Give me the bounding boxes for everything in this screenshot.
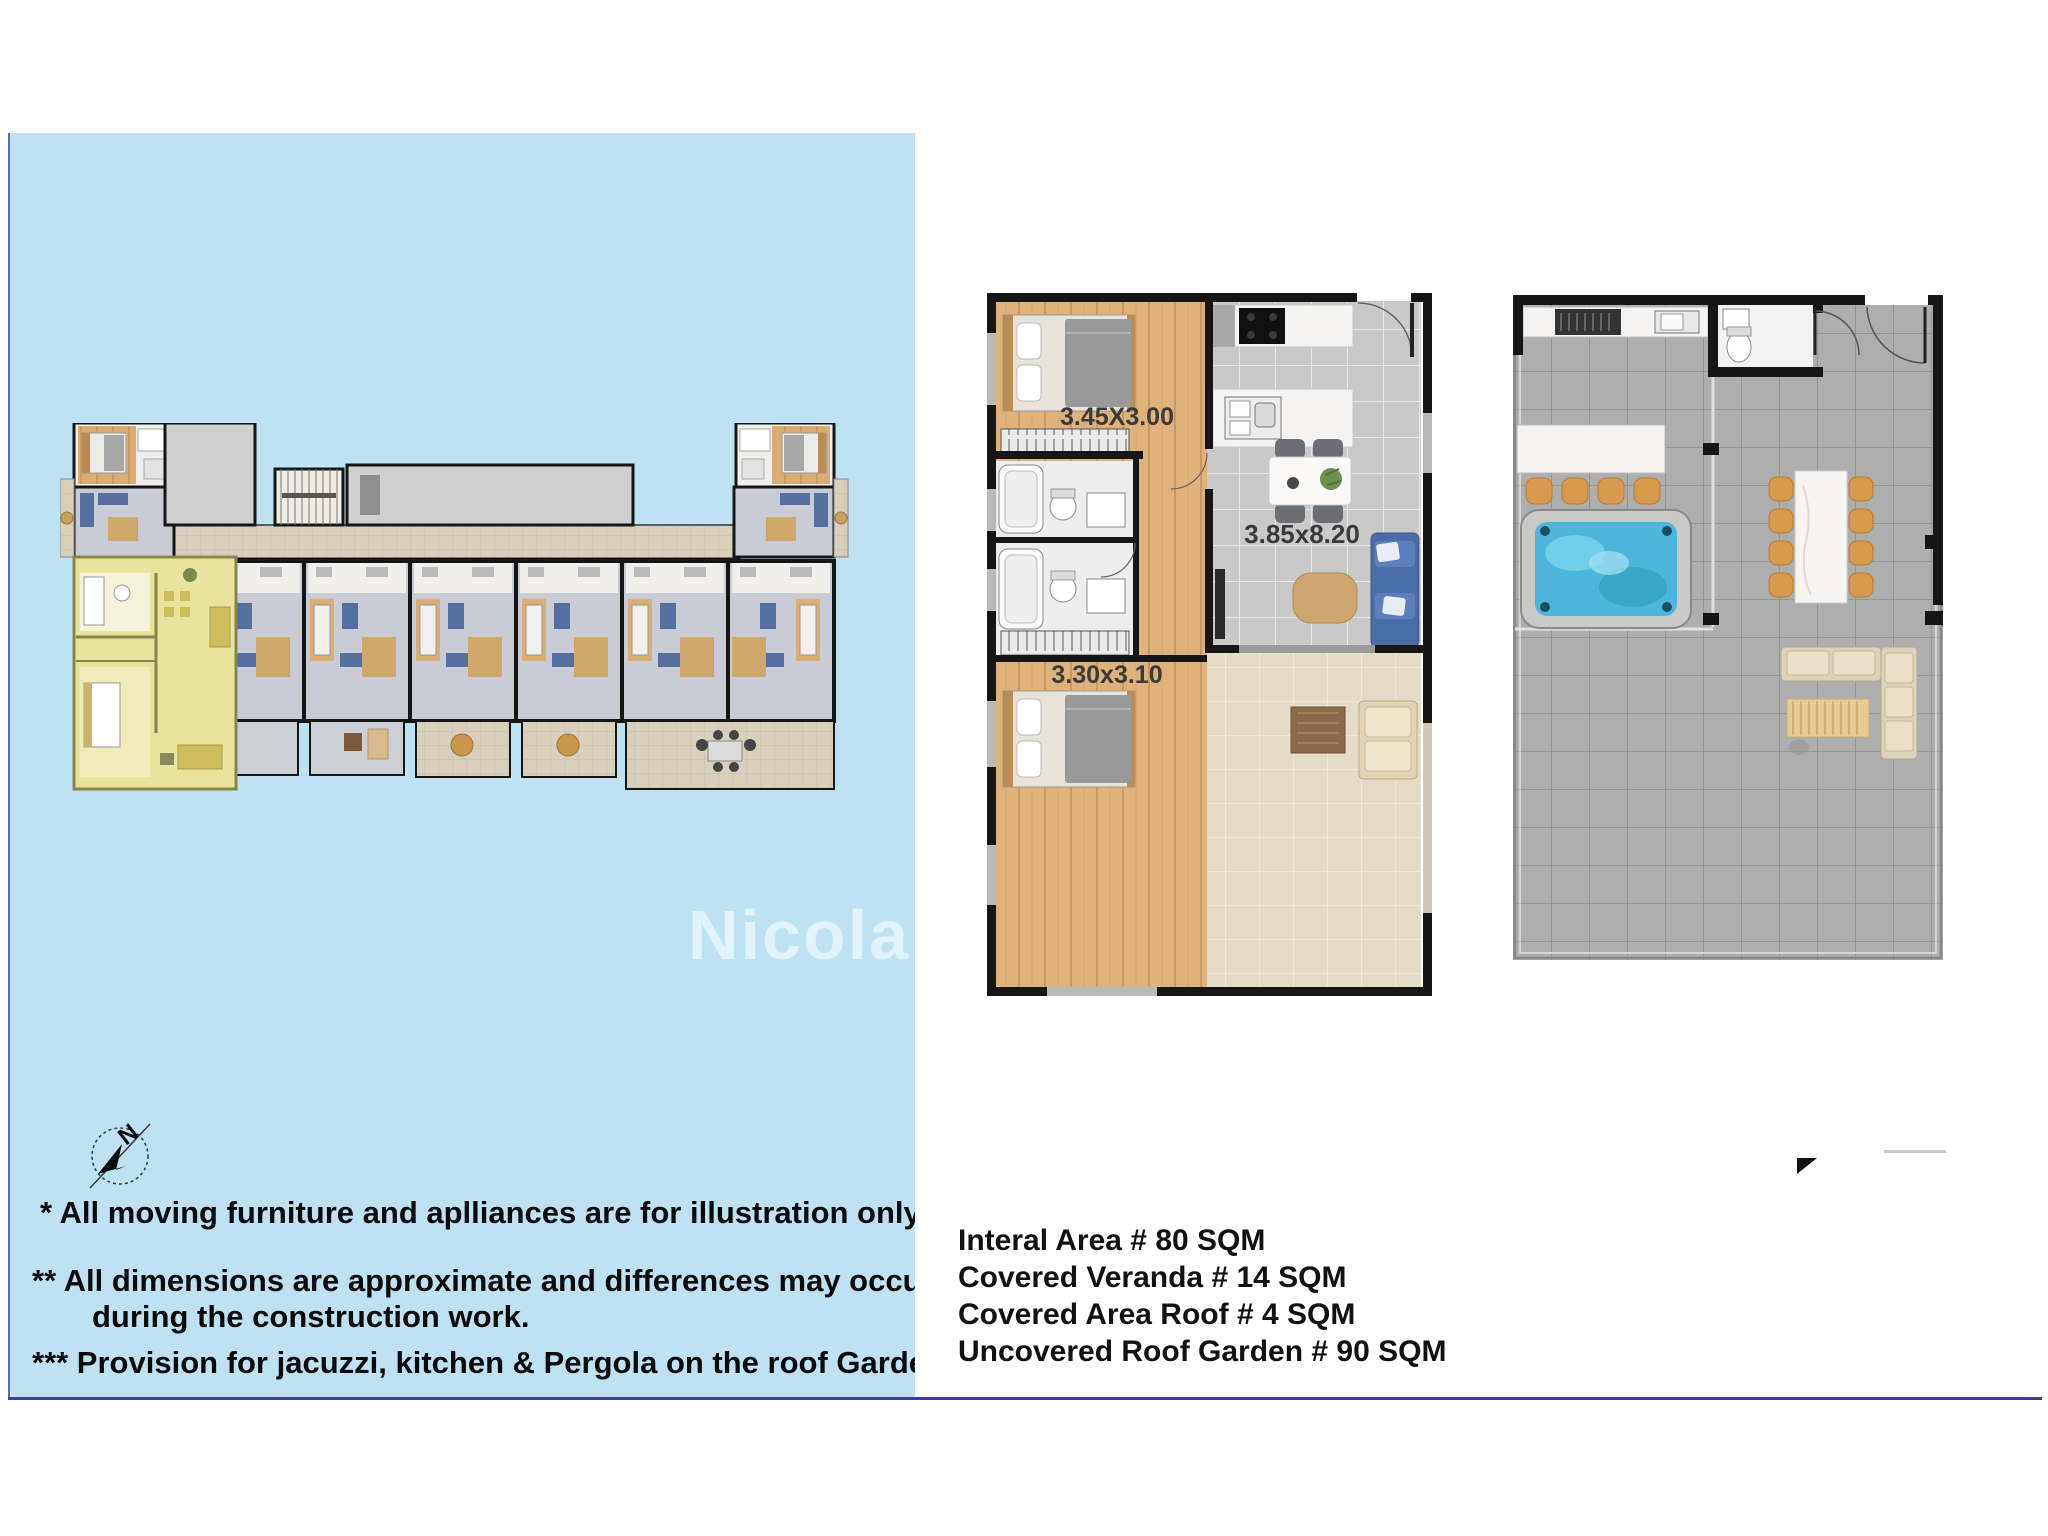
highlighted-unit: [74, 557, 236, 789]
bedroom1-dim-label: 3.45X3.00: [1060, 403, 1174, 431]
disclaimer-2-cont: during the construction work.: [92, 1299, 529, 1335]
wardrobe-1: [1001, 429, 1129, 453]
area-covered-veranda: Covered Veranda # 14 SQM: [958, 1261, 1347, 1295]
jacuzzi: [1521, 510, 1691, 628]
disclaimer-2: ** All dimensions are approximate and di…: [32, 1263, 915, 1299]
studio-units-row: [198, 561, 834, 789]
roof-block-right: [347, 465, 633, 525]
living-sofa: [1371, 533, 1419, 647]
stairwell: [275, 469, 343, 525]
compass-north-label: N: [113, 1119, 143, 1151]
floorplan-sheet: ·· ···· ·· ·····: [0, 0, 2048, 1536]
roof-block-left: [165, 423, 255, 525]
key-floor-plan: [60, 423, 852, 795]
tv-unit: [1215, 569, 1225, 639]
kitchen-counter: [1213, 305, 1353, 347]
apartment-floor-plan: 3.45X3.00 3.85x8.20 3.30x3.10: [987, 293, 1432, 996]
corridor: [165, 525, 740, 559]
bedroom2-dim-label: 3.30x3.10: [1051, 661, 1162, 689]
area-uncovered-roof-garden: Uncovered Roof Garden # 90 SQM: [958, 1335, 1446, 1369]
north-compass-icon: N: [82, 1112, 160, 1204]
right-wing-unit: [734, 423, 848, 557]
key-plan-panel: ·· ···· ·· ·····: [8, 133, 915, 1400]
area-internal: Interal Area # 80 SQM: [958, 1224, 1265, 1258]
bed-double-1: [1003, 315, 1135, 411]
left-wing-unit: [60, 423, 174, 557]
stray-wall-mark: [1797, 1158, 1817, 1174]
coffee-table: [1293, 573, 1357, 623]
watermark: Nicola: [688, 895, 910, 975]
disclaimer-3: *** Provision for jacuzzi, kitchen & Per…: [32, 1345, 915, 1381]
wardrobe-2: [1001, 631, 1129, 655]
roof-kitchen-counter: [1523, 307, 1708, 337]
bed-double-2: [1003, 691, 1135, 787]
disclaimer-1: * All moving furniture and aplliances ar…: [40, 1195, 915, 1231]
hall-floor: [1135, 461, 1207, 661]
stray-line-mark: [1884, 1150, 1946, 1153]
kitchen-island: [1213, 389, 1353, 447]
area-covered-roof: Covered Area Roof # 4 SQM: [958, 1298, 1355, 1332]
living-dim-label: 3.85x8.20: [1244, 519, 1360, 549]
bottom-divider-line: [8, 1397, 2042, 1400]
roof-garden-plan: [1513, 295, 1943, 960]
clipped-title-fragment: ·· ···· ·· ·····: [40, 133, 400, 142]
